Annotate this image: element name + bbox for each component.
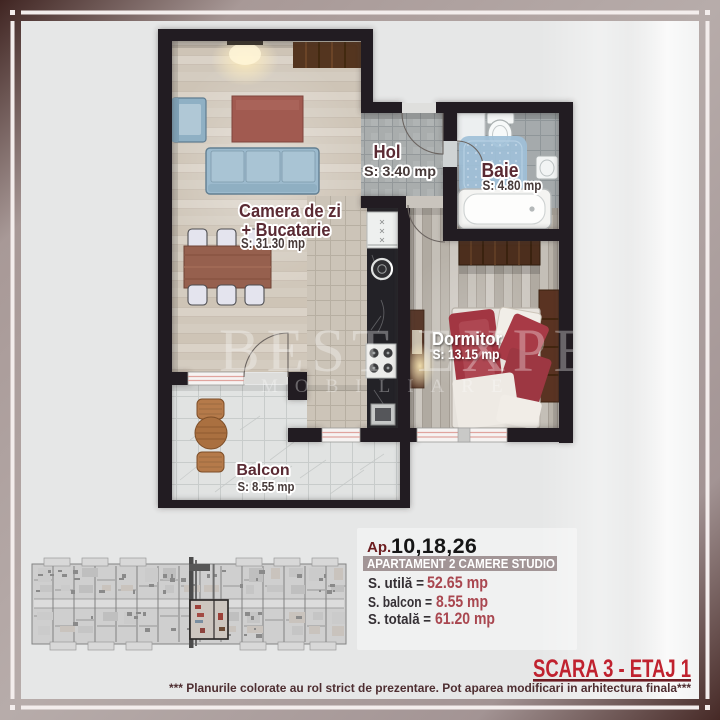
svg-text:Hol: Hol	[374, 142, 401, 162]
svg-text:61.20 mp: 61.20 mp	[435, 610, 495, 628]
svg-text:*** Planurile colorate au rol: *** Planurile colorate au rol strict de …	[169, 681, 691, 695]
svg-text:S: 4.80 mp: S: 4.80 mp	[483, 178, 542, 193]
svg-text:SCARA 3 - ETAJ 1: SCARA 3 - ETAJ 1	[533, 655, 691, 683]
svg-text:S: 8.55 mp: S: 8.55 mp	[238, 479, 295, 494]
svg-text:8.55 mp: 8.55 mp	[436, 593, 488, 611]
svg-text:S: 31.30 mp: S: 31.30 mp	[241, 235, 305, 252]
svg-text:APARTAMENT 2 CAMERE STUDIO: APARTAMENT 2 CAMERE STUDIO	[367, 556, 555, 571]
svg-text:Ap.: Ap.	[367, 539, 391, 556]
svg-text:S. totală =: S. totală =	[368, 612, 431, 628]
svg-text:S: 3.40 mp: S: 3.40 mp	[364, 163, 436, 179]
svg-text:Balcon: Balcon	[236, 462, 289, 479]
svg-text:Camera de zi: Camera de zi	[239, 201, 341, 221]
svg-text:S. balcon =: S. balcon =	[368, 595, 432, 611]
svg-text:S. utilă =: S. utilă =	[368, 576, 424, 592]
svg-text:S: 13.15 mp: S: 13.15 mp	[433, 346, 500, 362]
svg-text:52.65 mp: 52.65 mp	[427, 574, 488, 592]
svg-text:10,18,26: 10,18,26	[391, 534, 477, 558]
svg-text:MOBILIARE: MOBILIARE	[261, 376, 520, 397]
